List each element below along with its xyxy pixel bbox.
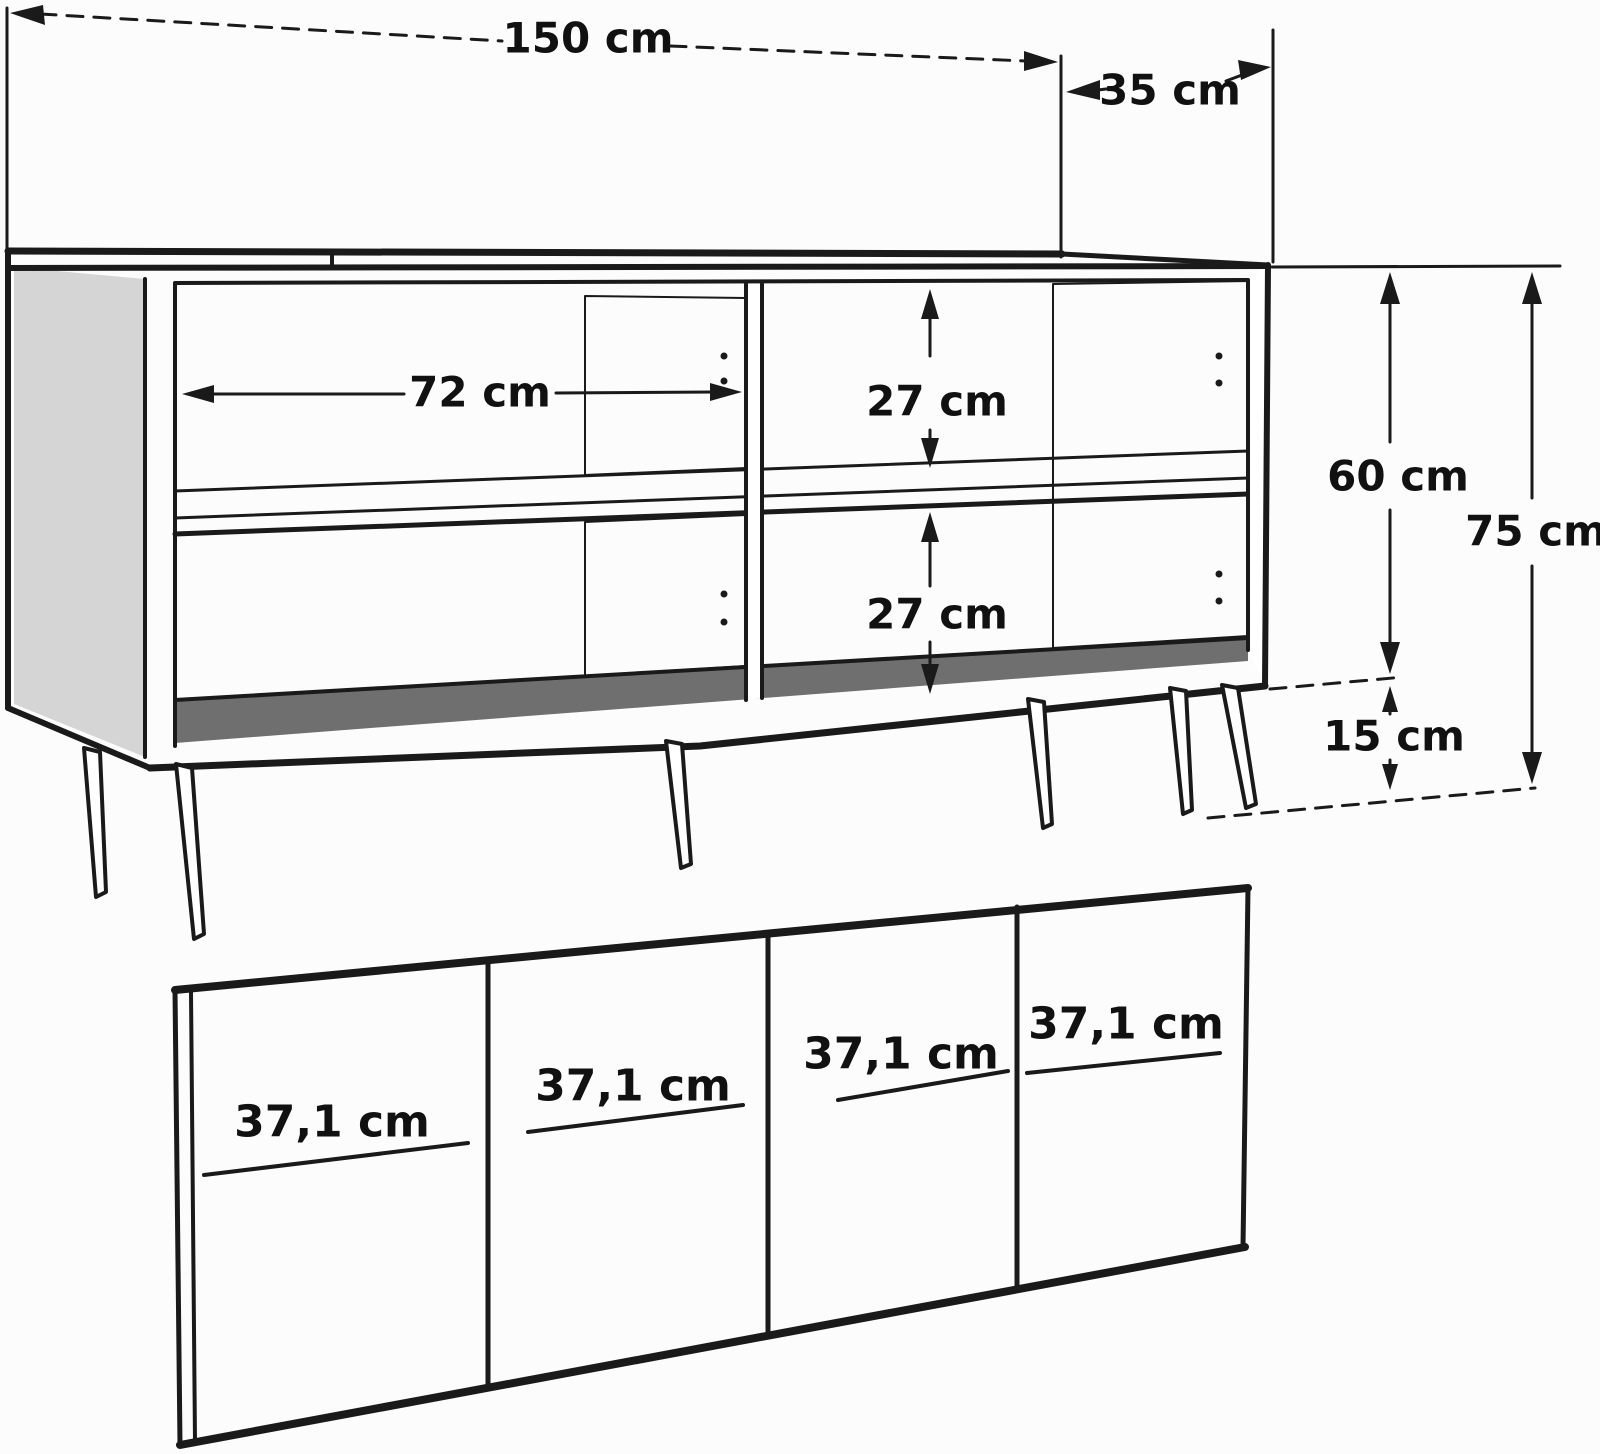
- dimension-total-width: 150 cm: [7, 5, 1061, 257]
- arrowhead-down: [1522, 752, 1542, 784]
- door-width-label-1: 37,1 cm: [234, 1097, 430, 1148]
- doors-top-edge: [175, 888, 1248, 990]
- top-front-edge: [8, 266, 1268, 268]
- dimension-label-inner-width: 72 cm: [409, 368, 551, 417]
- diagram-canvas: 150 cm 35 cm 72 cm 27 cm 27 cm: [0, 0, 1600, 1454]
- dimension-label-leg-height: 15 cm: [1323, 712, 1465, 761]
- dimension-line: [670, 46, 1026, 61]
- dimension-inner-width: 72 cm: [182, 368, 742, 417]
- pin-hole: [1216, 353, 1223, 360]
- dimension-line: [556, 392, 714, 393]
- arrowhead-right: [1024, 51, 1058, 71]
- doors-left-edge-outer: [175, 990, 180, 1445]
- extension-line-top-right: [1272, 266, 1560, 267]
- dimension-line: [40, 14, 502, 41]
- doors-bottom-edge: [180, 1247, 1245, 1445]
- dimension-body-height: 60 cm: [1270, 272, 1469, 689]
- leg: [84, 748, 106, 897]
- leg: [1170, 688, 1192, 814]
- right-outer-edge: [1265, 265, 1268, 686]
- arrowhead-down: [1380, 642, 1400, 674]
- furniture-dimension-diagram: 150 cm 35 cm 72 cm 27 cm 27 cm: [0, 0, 1600, 1454]
- door-width-underline-1: [204, 1143, 468, 1175]
- top-back-edge: [8, 251, 1062, 254]
- arrowhead-up: [921, 512, 939, 542]
- left-side-panel-face: [14, 267, 145, 757]
- dimension-depth: 35 cm: [1066, 30, 1273, 262]
- door-width-label-2: 37,1 cm: [535, 1061, 731, 1112]
- doors-right-edge: [1243, 888, 1248, 1247]
- divider-front-strip: [746, 284, 762, 700]
- door-width-label-3: 37,1 cm: [803, 1029, 999, 1080]
- leg: [176, 764, 204, 939]
- arrowhead-right: [710, 383, 742, 401]
- extension-line-bottom: [1270, 677, 1404, 689]
- dimension-label-total-height: 75 cm: [1465, 507, 1600, 556]
- arrowhead-down: [1382, 764, 1398, 790]
- pin-hole: [721, 378, 728, 385]
- leg: [666, 741, 691, 868]
- door-width-underline-4: [1027, 1053, 1220, 1073]
- dimension-label-depth: 35 cm: [1099, 66, 1241, 115]
- shelf-bottom-edge: [175, 494, 1248, 534]
- doors-left-edge-inner: [191, 992, 195, 1442]
- pin-hole: [721, 353, 728, 360]
- door-width-label-4: 37,1 cm: [1028, 999, 1224, 1050]
- leg: [1028, 699, 1052, 828]
- door-panels-view: 37,1 cm 37,1 cm 37,1 cm 37,1 cm: [175, 888, 1248, 1445]
- dimension-leg-height: 15 cm: [1323, 686, 1465, 790]
- pin-hole: [721, 591, 728, 598]
- dimension-label-total-width: 150 cm: [503, 14, 674, 63]
- center-divider-upper-face: [585, 296, 746, 475]
- dimension-label-lower-compartment: 27 cm: [866, 590, 1008, 639]
- leg: [1222, 685, 1256, 808]
- arrowhead-left: [1066, 80, 1100, 100]
- cabinet-perspective-view: [8, 251, 1268, 939]
- dimension-label-body-height: 60 cm: [1327, 452, 1469, 501]
- dimension-label-upper-compartment: 27 cm: [866, 377, 1008, 426]
- pin-hole: [1216, 380, 1223, 387]
- dimension-upper-compartment: 27 cm: [866, 289, 1008, 468]
- shelf-board-face: [175, 451, 1248, 518]
- pin-hole: [1216, 598, 1223, 605]
- pin-hole: [1216, 571, 1223, 578]
- pin-hole: [721, 619, 728, 626]
- arrowhead-right: [1238, 60, 1271, 80]
- right-side-panel-face: [1053, 281, 1248, 648]
